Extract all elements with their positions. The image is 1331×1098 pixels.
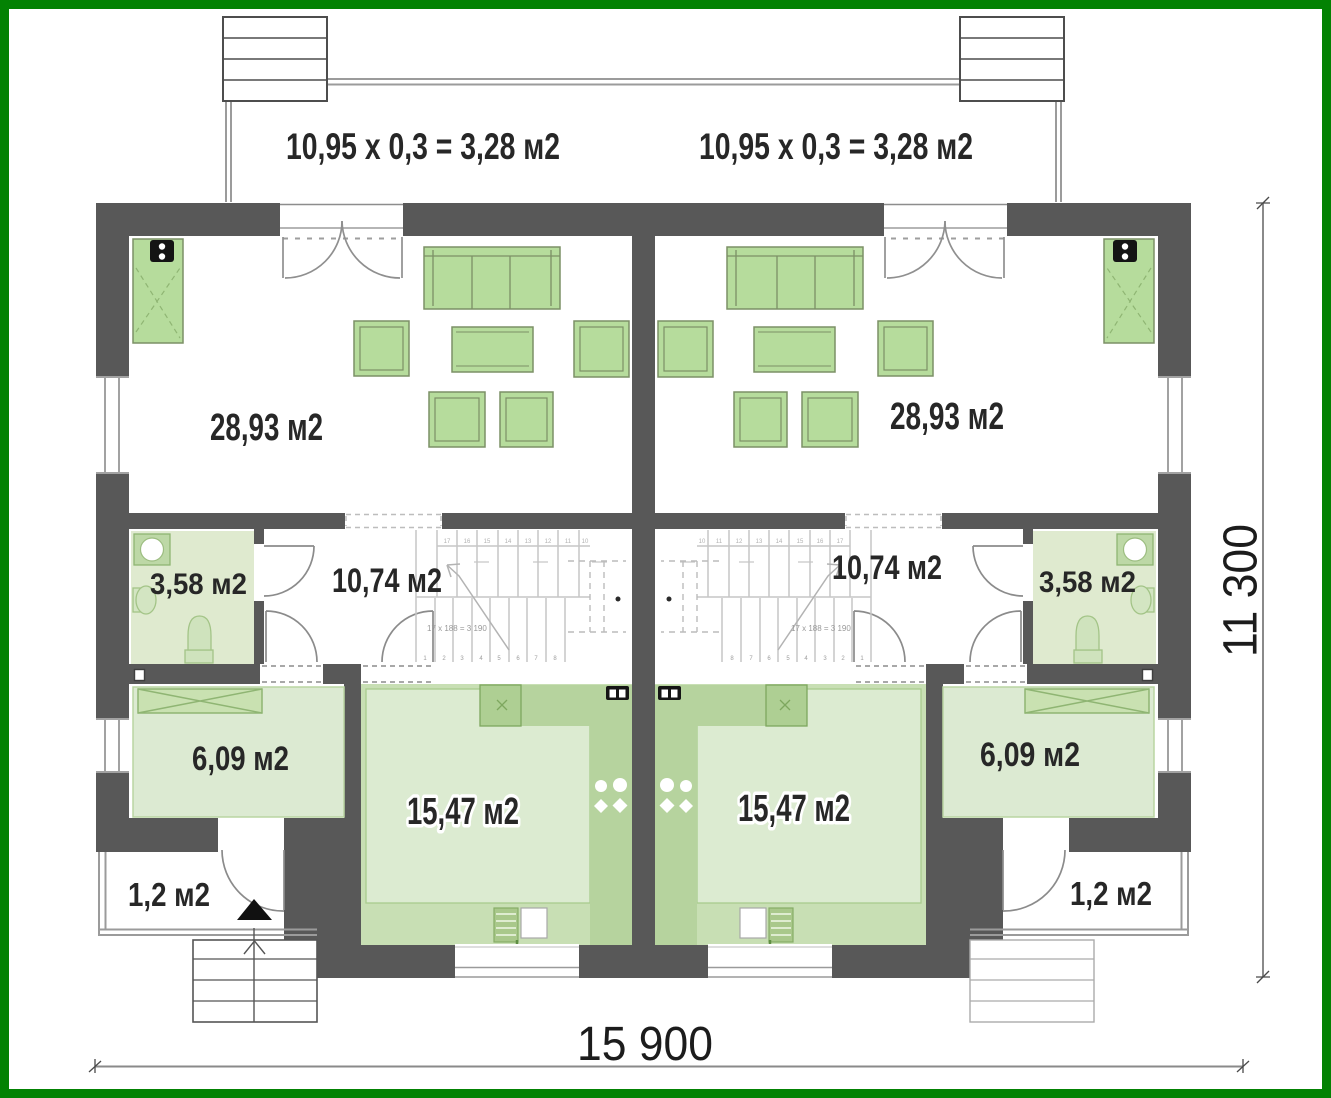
svg-text:13: 13	[756, 539, 763, 545]
svg-text:12: 12	[545, 539, 552, 545]
svg-text:10,74 м2: 10,74 м2	[332, 562, 442, 600]
svg-text:16: 16	[464, 539, 471, 545]
svg-text:12: 12	[736, 539, 743, 545]
svg-text:15,47 м2: 15,47 м2	[407, 791, 519, 833]
svg-text:14: 14	[505, 539, 512, 545]
svg-text:11 300: 11 300	[1215, 524, 1268, 657]
svg-text:6,09 м2: 6,09 м2	[192, 740, 289, 778]
svg-text:10,95 x 0,3 = 3,28 м2: 10,95 x 0,3 = 3,28 м2	[699, 126, 973, 167]
svg-text:17: 17	[837, 539, 844, 545]
svg-text:15 900: 15 900	[577, 1018, 713, 1071]
svg-text:6,09 м2: 6,09 м2	[980, 736, 1080, 774]
svg-text:17 x 188 = 3 190: 17 x 188 = 3 190	[427, 624, 487, 633]
svg-text:15,47 м2: 15,47 м2	[738, 788, 850, 830]
svg-text:10: 10	[699, 539, 706, 545]
svg-text:28,93 м2: 28,93 м2	[210, 407, 323, 449]
svg-text:15: 15	[797, 539, 804, 545]
svg-text:10,74 м2: 10,74 м2	[832, 549, 942, 587]
svg-text:3,58 м2: 3,58 м2	[1039, 566, 1136, 599]
svg-text:14: 14	[776, 539, 783, 545]
svg-text:16: 16	[817, 539, 824, 545]
svg-text:1,2 м2: 1,2 м2	[128, 876, 210, 913]
svg-text:28,93 м2: 28,93 м2	[890, 396, 1004, 438]
svg-text:10: 10	[582, 539, 589, 545]
svg-text:17: 17	[444, 539, 451, 545]
svg-text:17 x 188 = 3 190: 17 x 188 = 3 190	[791, 624, 851, 633]
svg-text:10,95 x 0,3 = 3,28 м2: 10,95 x 0,3 = 3,28 м2	[286, 126, 560, 167]
svg-text:13: 13	[525, 539, 532, 545]
svg-text:1,2 м2: 1,2 м2	[1070, 875, 1152, 912]
svg-text:15: 15	[484, 539, 491, 545]
svg-text:3,58 м2: 3,58 м2	[150, 568, 247, 601]
svg-text:11: 11	[565, 539, 572, 545]
svg-text:11: 11	[716, 539, 723, 545]
